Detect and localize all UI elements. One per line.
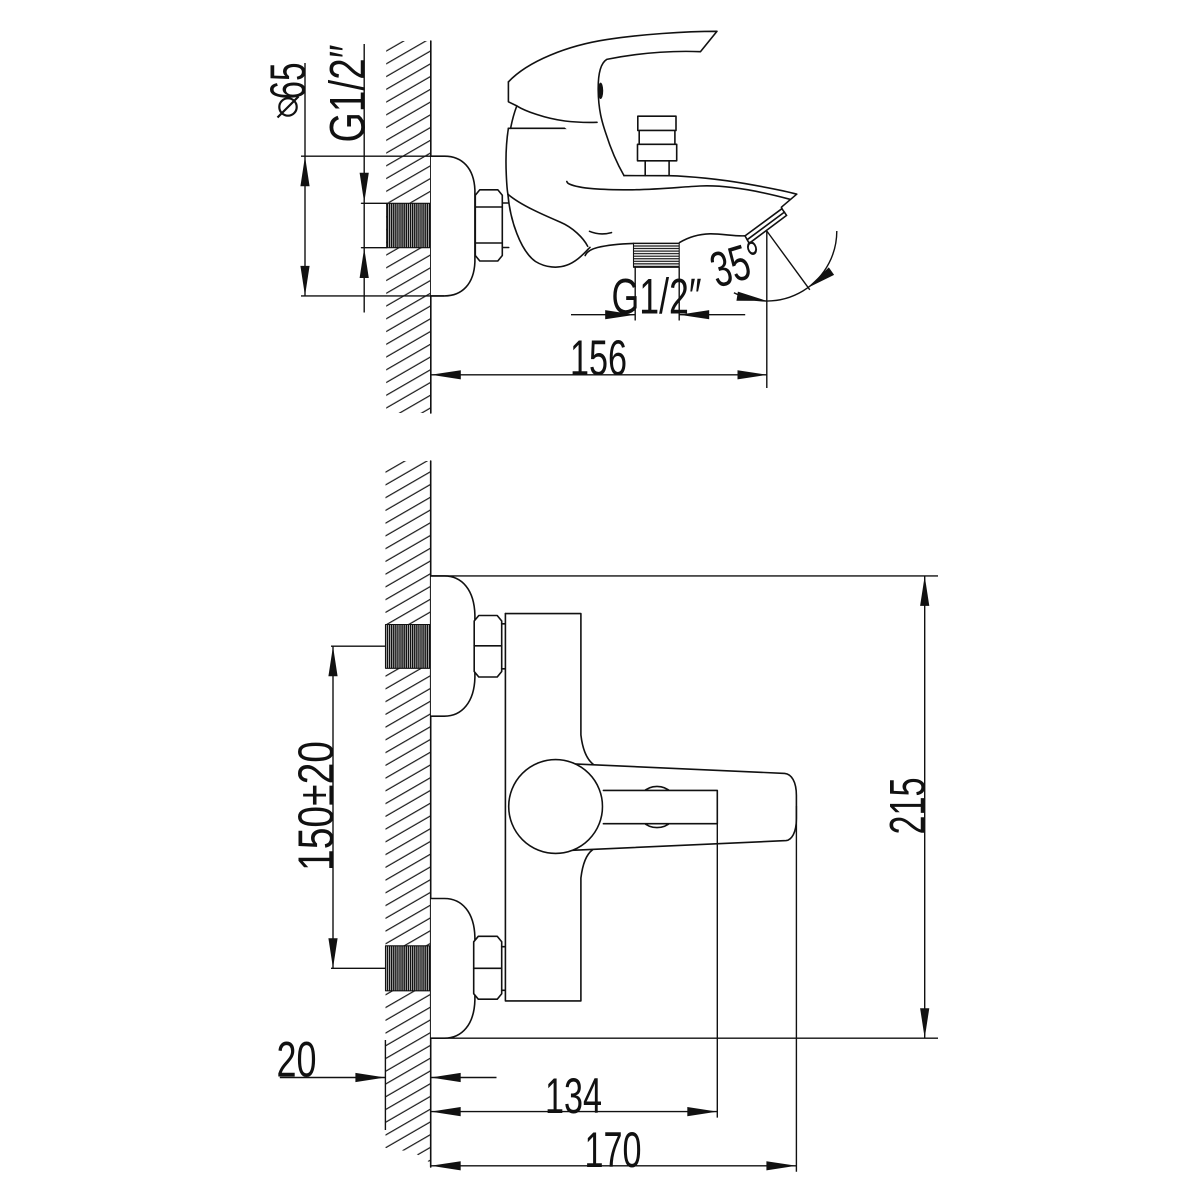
svg-text:G1/2″: G1/2″ bbox=[612, 269, 702, 325]
svg-text:20: 20 bbox=[277, 1031, 317, 1087]
svg-text:170: 170 bbox=[585, 1122, 642, 1178]
svg-text:156: 156 bbox=[570, 330, 627, 386]
svg-text:150±20: 150±20 bbox=[288, 741, 344, 871]
svg-text:65: 65 bbox=[260, 63, 316, 100]
svg-text:215: 215 bbox=[880, 778, 936, 835]
svg-text:G1/2″: G1/2″ bbox=[320, 45, 376, 143]
svg-text:134: 134 bbox=[545, 1068, 602, 1124]
